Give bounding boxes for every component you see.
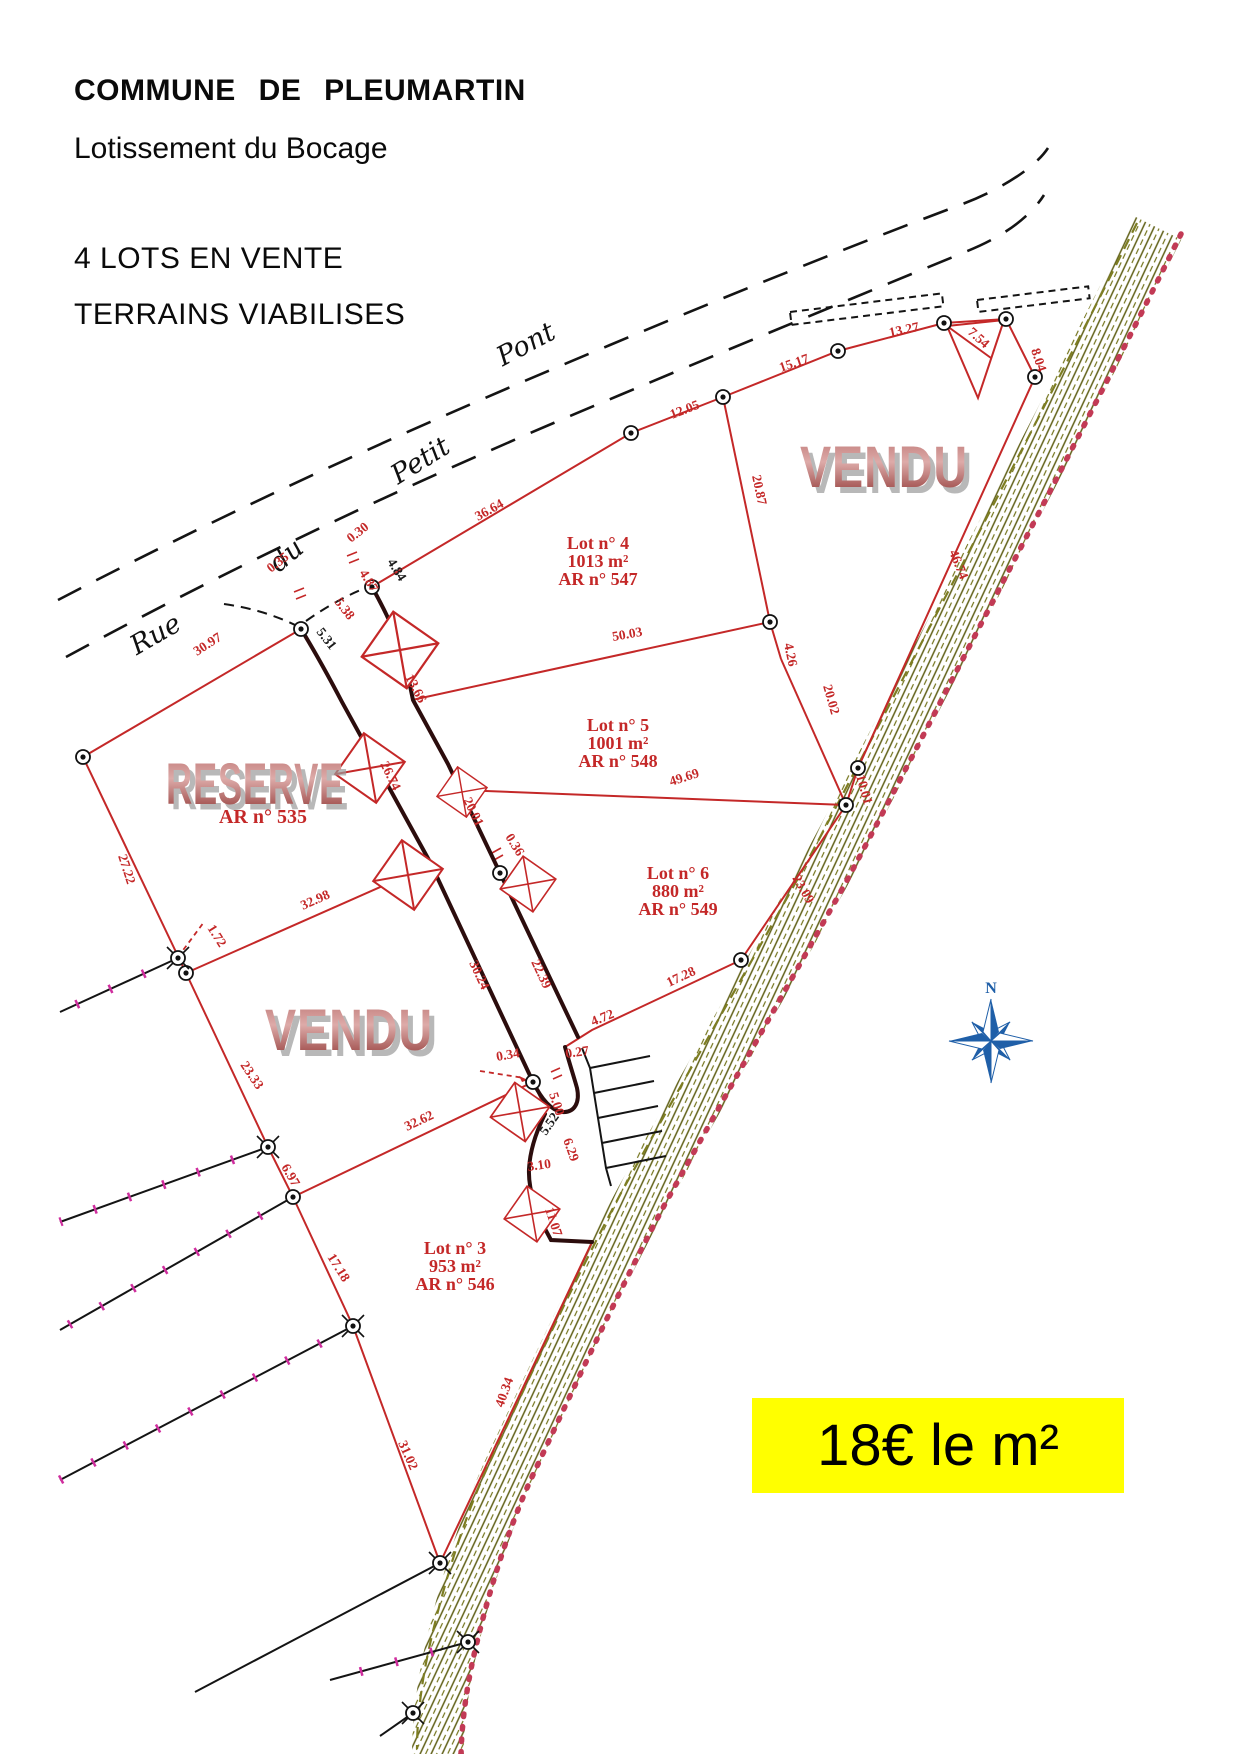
- roadside-strip: [977, 286, 1090, 312]
- lot-area: 1013 m²: [568, 551, 629, 571]
- compass-north-label: N: [985, 980, 997, 997]
- roadside-strip: [790, 293, 943, 325]
- dim-label: 3.10: [526, 1156, 552, 1174]
- stamp-text: VENDU: [265, 997, 433, 1062]
- dim-label: 27.22: [115, 852, 139, 886]
- vendu-stamp-top: VENDU VENDU: [800, 434, 973, 505]
- dim-label: 31.02: [395, 1438, 421, 1472]
- compass-cardinal-points: [949, 999, 1033, 1083]
- reserve-stamp: RESERVE RESERVE: [166, 751, 349, 822]
- compass-rose: N: [949, 980, 1033, 1083]
- dim-label: 22.39: [528, 957, 555, 991]
- dim-label: 20.02: [820, 683, 843, 717]
- dim-label: 30.24: [466, 958, 493, 992]
- access-road-edges: [301, 587, 592, 1242]
- dim-label: 17.18: [324, 1251, 353, 1285]
- lot-area: 953 m²: [429, 1256, 481, 1276]
- lot-ar: AR n° 547: [558, 569, 637, 589]
- dim-label: 1.72: [204, 922, 229, 950]
- dim-label: 5.31: [314, 625, 341, 653]
- lot-name: Lot n° 5: [587, 715, 649, 735]
- stamp-text: RESERVE: [166, 751, 344, 816]
- survey-markers: [76, 312, 1042, 1724]
- lot5-east-edge: [781, 659, 846, 805]
- dim-label: 23.33: [238, 1058, 268, 1092]
- dim-label: 7.54: [965, 324, 993, 351]
- price-banner: 18€ le m²: [752, 1398, 1124, 1493]
- stamp-text: VENDU: [800, 434, 968, 499]
- fence-line: [60, 958, 468, 1736]
- street-edge-north: [58, 148, 1048, 600]
- offset-dash-0-34: [480, 1071, 524, 1078]
- lot-name: Lot n° 3: [424, 1238, 486, 1258]
- dim-label: 32.62: [402, 1107, 436, 1134]
- dim-label: 0.30: [344, 519, 372, 546]
- dim-label: 32.98: [298, 887, 332, 913]
- street-word: Rue: [124, 608, 187, 662]
- lot-name: Lot n° 4: [567, 533, 629, 553]
- lot-area: 880 m²: [652, 881, 704, 901]
- dim-label: 6.29: [560, 1136, 582, 1164]
- lot5-south-edge: [460, 790, 846, 805]
- hatch-stroke: [438, 228, 1158, 1754]
- lot-area: 1001 m²: [588, 733, 649, 753]
- dim-label: 36.64: [472, 496, 506, 524]
- dim-label: 50.03: [611, 624, 644, 644]
- dim-label: 12.05: [668, 397, 702, 422]
- lot-ar: AR n° 548: [578, 751, 657, 771]
- dim-label: 30.97: [190, 629, 224, 658]
- dim-label: 0.34: [495, 1045, 521, 1064]
- dim-label: 49.69: [667, 765, 701, 789]
- street-word: Pont: [491, 316, 561, 373]
- dim-label: 17.28: [664, 963, 698, 990]
- dim-label: 4.84: [384, 556, 409, 584]
- dim-label: 4.72: [589, 1006, 617, 1029]
- street-edge-south: [66, 195, 1044, 657]
- dim-label: 15.17: [777, 351, 811, 375]
- vendu-stamp-middle: VENDU VENDU: [265, 997, 438, 1068]
- dim-label: 20.87: [749, 474, 770, 507]
- lot-ar: AR n° 546: [415, 1274, 494, 1294]
- dim-label: 5.38: [332, 595, 359, 623]
- lot4-east-edge: [723, 397, 770, 622]
- lot4-south-edge: [412, 622, 781, 700]
- lot-ar: AR n° 549: [638, 899, 717, 919]
- fence-lines: [60, 958, 468, 1736]
- dim-label: 0.36: [502, 831, 527, 859]
- lot-name: Lot n° 6: [647, 863, 709, 883]
- entrance-curb-left: [224, 604, 299, 627]
- embankment-hatch-band: [417, 223, 1181, 1754]
- dim-label: 13.27: [888, 319, 921, 340]
- lot3-north-edge: [293, 1082, 533, 1197]
